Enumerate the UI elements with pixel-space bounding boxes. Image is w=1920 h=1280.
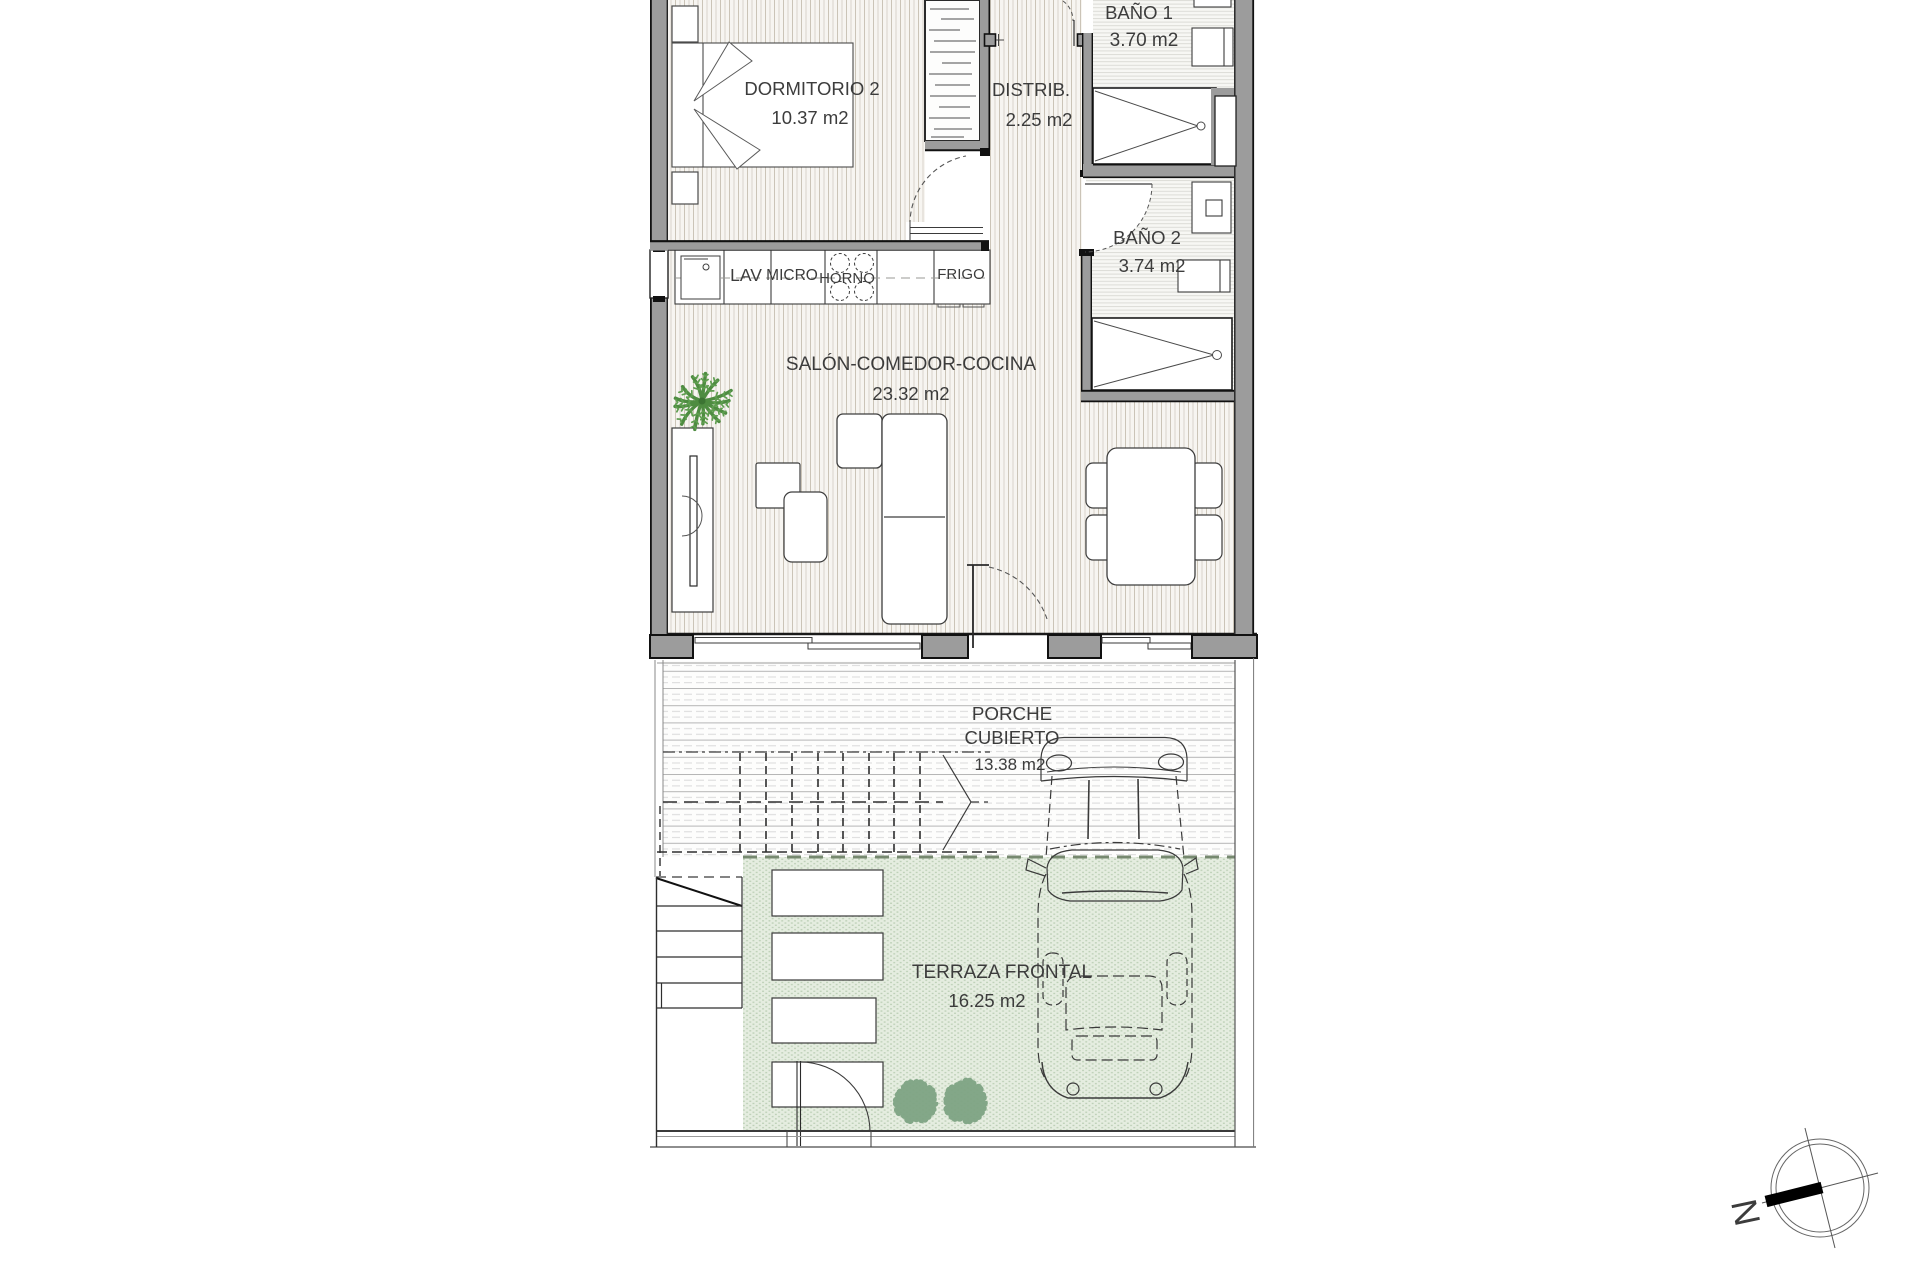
- svg-text:SALÓN-COMEDOR-COCINA: SALÓN-COMEDOR-COCINA: [786, 353, 1037, 375]
- svg-text:16.25 m2: 16.25 m2: [948, 990, 1025, 1011]
- svg-text:MICRO: MICRO: [766, 267, 818, 284]
- svg-text:HORNO: HORNO: [819, 270, 875, 287]
- svg-text:10.37 m2: 10.37 m2: [771, 107, 848, 128]
- svg-text:13.38 m2: 13.38 m2: [975, 755, 1046, 774]
- svg-text:23.32 m2: 23.32 m2: [872, 383, 949, 404]
- svg-text:BAÑO 2: BAÑO 2: [1113, 227, 1181, 248]
- svg-text:LAV: LAV: [730, 265, 762, 285]
- svg-text:PORCHE: PORCHE: [972, 703, 1052, 724]
- svg-text:CUBIERTO: CUBIERTO: [965, 727, 1060, 748]
- svg-text:TERRAZA FRONTAL: TERRAZA FRONTAL: [912, 962, 1092, 983]
- svg-text:2.25 m2: 2.25 m2: [1006, 109, 1073, 130]
- svg-text:3.70 m2: 3.70 m2: [1110, 30, 1179, 51]
- svg-text:BAÑO 1: BAÑO 1: [1105, 2, 1173, 23]
- svg-text:3.74 m2: 3.74 m2: [1119, 255, 1186, 276]
- svg-text:DISTRIB.: DISTRIB.: [992, 79, 1070, 100]
- svg-text:FRIGO: FRIGO: [937, 266, 985, 283]
- svg-text:DORMITORIO 2: DORMITORIO 2: [744, 78, 879, 99]
